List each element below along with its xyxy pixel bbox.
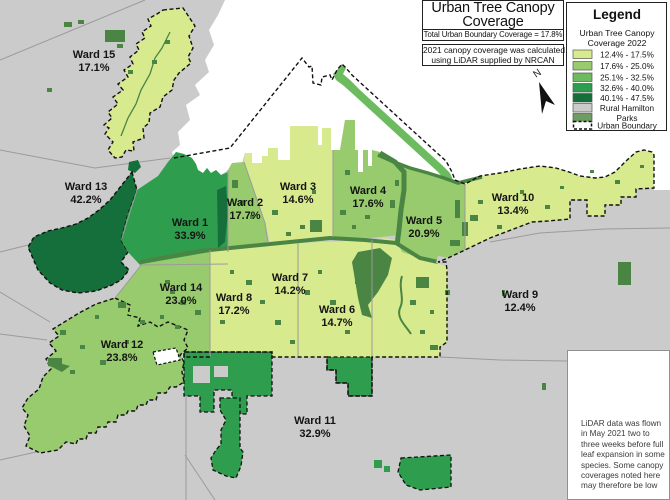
- svg-text:32.6% - 40.0%: 32.6% - 40.0%: [600, 84, 654, 93]
- svg-text:12.4%: 12.4%: [504, 302, 535, 314]
- svg-text:Ward 1: Ward 1: [172, 217, 208, 229]
- svg-text:33.9%: 33.9%: [174, 230, 205, 242]
- svg-text:Legend: Legend: [593, 7, 641, 22]
- svg-text:Rural Hamilton: Rural Hamilton: [600, 104, 655, 113]
- svg-text:Ward 10: Ward 10: [492, 192, 534, 204]
- svg-text:17.6% - 25.0%: 17.6% - 25.0%: [600, 62, 654, 71]
- svg-text:Ward 13: Ward 13: [65, 181, 107, 193]
- svg-text:32.9%: 32.9%: [299, 428, 330, 440]
- svg-text:Ward 3: Ward 3: [280, 181, 316, 193]
- svg-text:Ward 5: Ward 5: [406, 215, 442, 227]
- svg-text:Ward 15: Ward 15: [73, 49, 115, 61]
- svg-text:Urban Tree Canopy: Urban Tree Canopy: [580, 28, 656, 38]
- svg-text:Ward 6: Ward 6: [319, 304, 355, 316]
- svg-text:17.7%: 17.7%: [229, 210, 260, 222]
- svg-text:Ward 8: Ward 8: [216, 292, 252, 304]
- svg-text:Coverage 2022: Coverage 2022: [588, 38, 647, 48]
- svg-text:40.1% - 47.5%: 40.1% - 47.5%: [600, 94, 654, 103]
- svg-text:17.1%: 17.1%: [78, 62, 109, 74]
- svg-text:17.2%: 17.2%: [218, 305, 249, 317]
- svg-text:Ward 9: Ward 9: [502, 289, 538, 301]
- svg-text:Ward 4: Ward 4: [350, 185, 387, 197]
- svg-text:12.4% - 17.5%: 12.4% - 17.5%: [600, 51, 654, 60]
- svg-text:Ward 2: Ward 2: [227, 197, 263, 209]
- svg-text:Ward 7: Ward 7: [272, 272, 308, 284]
- svg-text:13.4%: 13.4%: [497, 205, 528, 217]
- svg-text:42.2%: 42.2%: [70, 194, 101, 206]
- svg-text:14.7%: 14.7%: [321, 317, 352, 329]
- svg-text:Ward 11: Ward 11: [294, 415, 336, 427]
- svg-text:14.6%: 14.6%: [282, 194, 313, 206]
- svg-text:20.9%: 20.9%: [408, 228, 439, 240]
- svg-text:25.1% - 32.5%: 25.1% - 32.5%: [600, 74, 654, 83]
- svg-text:Ward 14: Ward 14: [160, 282, 203, 294]
- svg-text:Ward 12: Ward 12: [101, 339, 143, 351]
- svg-text:23.8%: 23.8%: [106, 352, 137, 364]
- svg-text:Urban Boundary: Urban Boundary: [597, 122, 658, 131]
- svg-text:14.2%: 14.2%: [274, 285, 305, 297]
- svg-text:23.0%: 23.0%: [165, 295, 196, 307]
- svg-text:17.6%: 17.6%: [352, 198, 383, 210]
